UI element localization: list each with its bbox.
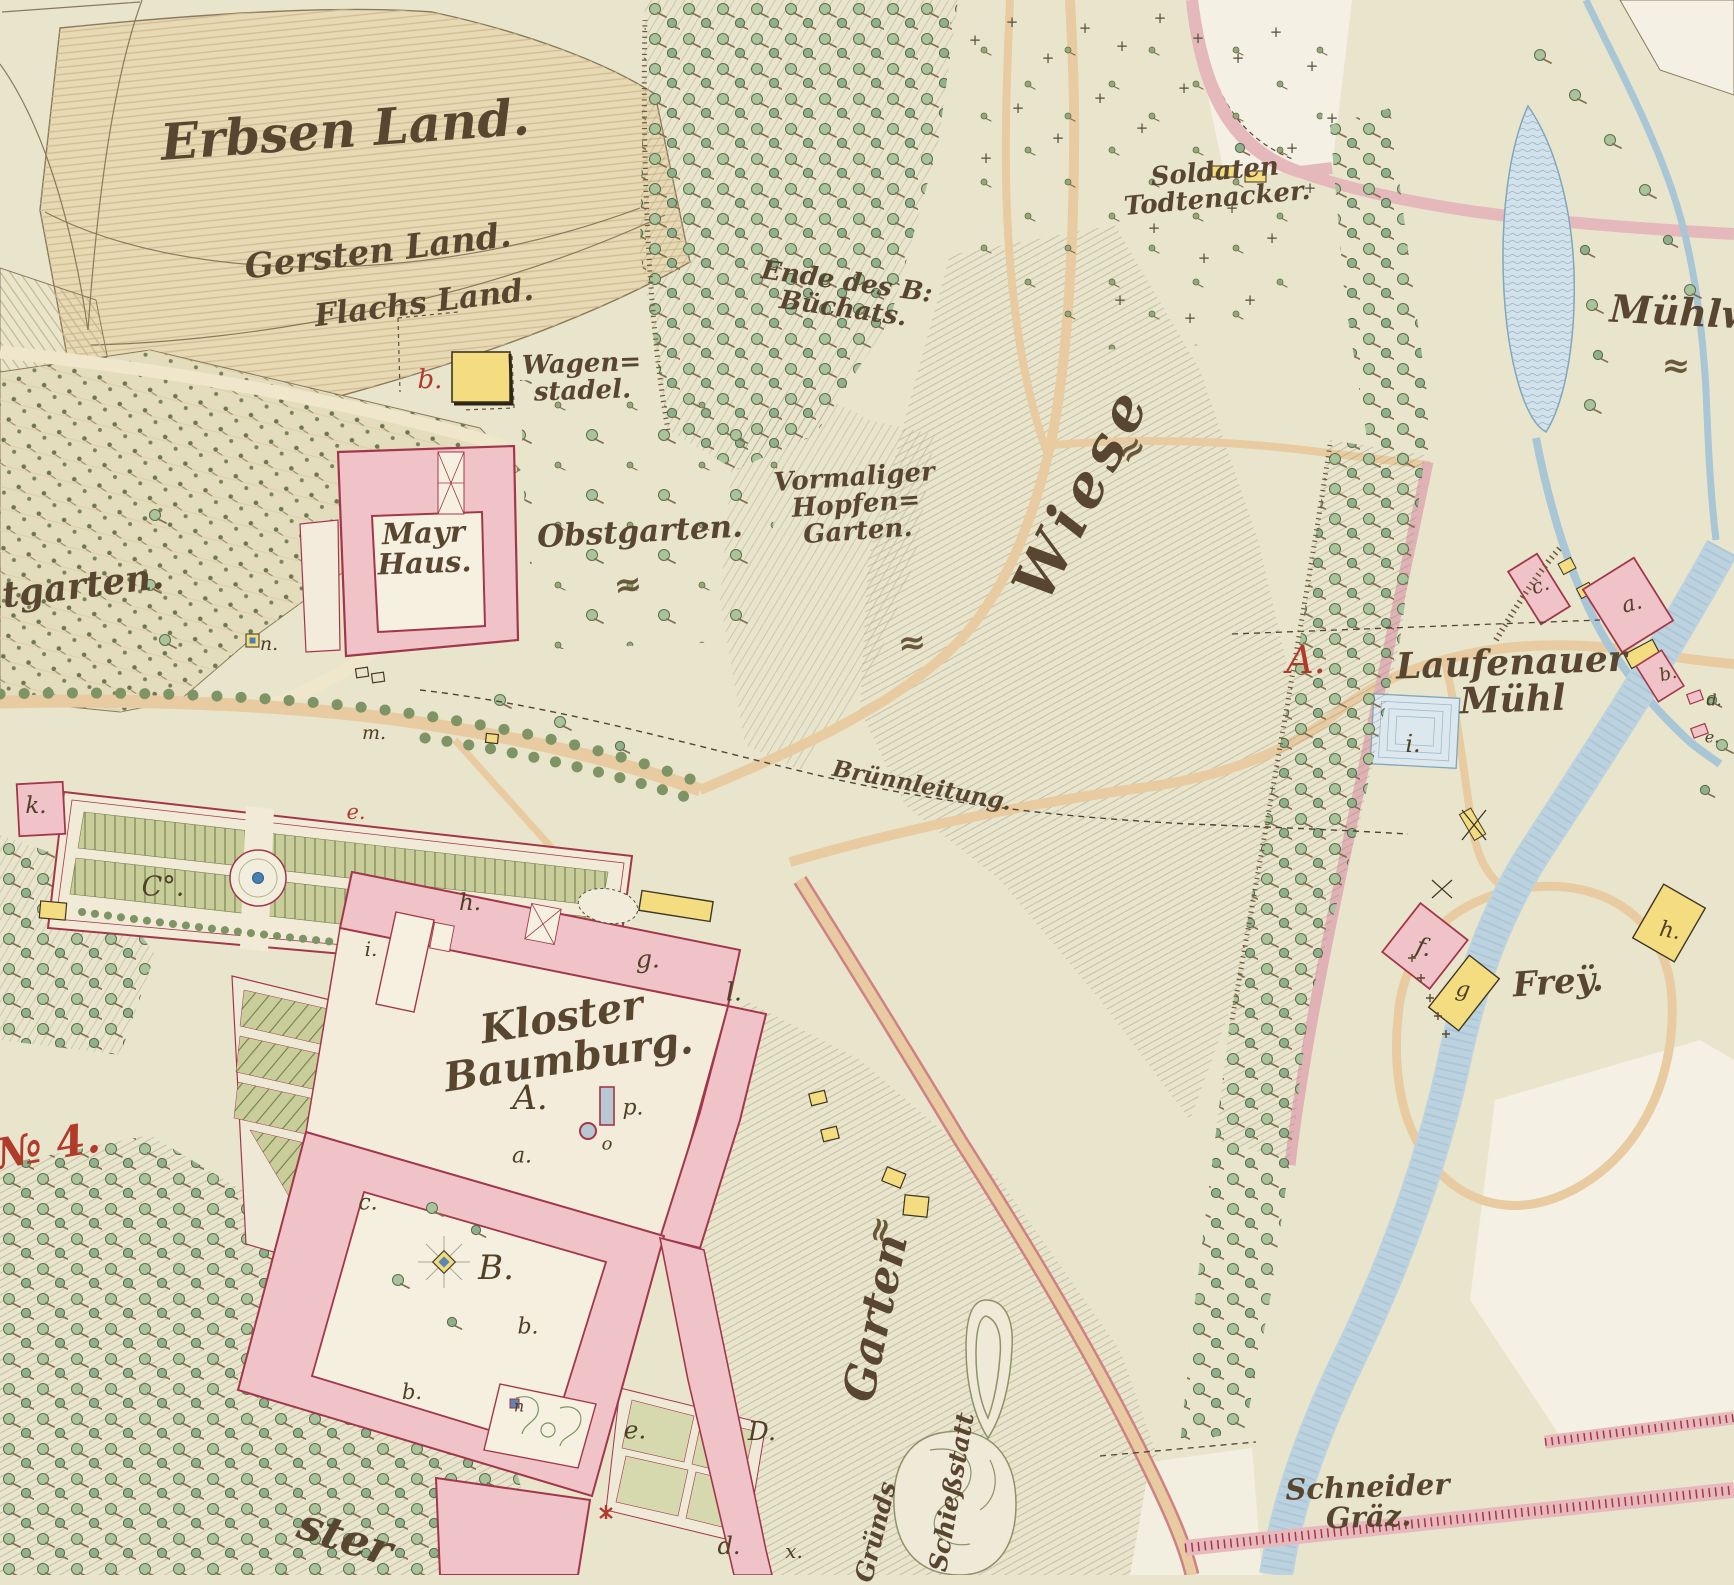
- marker-o: [580, 1123, 596, 1139]
- kloster-south-wing: [436, 1478, 590, 1575]
- forest-strip-lower: [1180, 1140, 1290, 1445]
- frey-buildings: [1382, 884, 1705, 1038]
- yellow-barn-ne: [639, 890, 713, 921]
- white-field-schneider: [1470, 1040, 1734, 1436]
- todtenacker-bushes: [950, 20, 1330, 350]
- parterre-arabesque: [894, 1431, 1016, 1575]
- building-k: [17, 782, 66, 836]
- pond-flank-forest: [1330, 108, 1432, 470]
- avenue-road: [0, 701, 700, 790]
- white-field-top-corner: [1620, 0, 1734, 95]
- small-outbuildings-m: [356, 667, 385, 683]
- historic-manuscript-map: { "palette": { "parchment": "#e9e5cc", "…: [0, 0, 1734, 1575]
- conduit-head-n: [246, 634, 259, 647]
- marker-p: [600, 1087, 614, 1125]
- frey-access-road: [1445, 660, 1510, 892]
- obstgarten-trees: [520, 380, 780, 650]
- map-canvas: [0, 0, 1734, 1575]
